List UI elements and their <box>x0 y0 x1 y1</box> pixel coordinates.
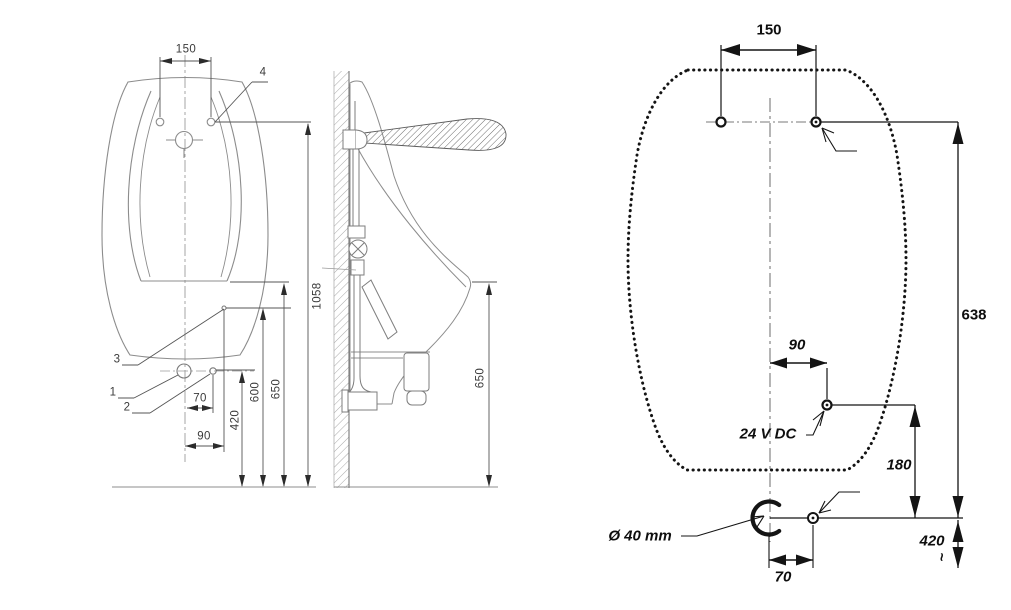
sensor-head <box>343 130 356 149</box>
side-dim-650: 650 <box>475 368 487 388</box>
spreader-tube <box>362 280 397 339</box>
front-item-4: 4 <box>260 67 267 79</box>
front-item-2: 2 <box>124 402 131 414</box>
template-dim-420: 420 <box>919 534 944 549</box>
drain-diameter-label: Ø 40 mm <box>608 529 671 544</box>
front-dim-600: 600 <box>250 382 262 402</box>
template-outline-dotted <box>628 70 906 470</box>
side-view-linework <box>322 71 506 488</box>
front-item-3: 3 <box>114 354 121 366</box>
approx-tilde-symbol: ~ <box>934 553 949 562</box>
front-dim-70: 70 <box>193 393 207 405</box>
template-dim-90: 90 <box>789 338 806 353</box>
front-dim-150: 150 <box>176 44 196 56</box>
wall-outlet <box>347 392 377 410</box>
flush-inlet-circle <box>176 132 193 149</box>
urinal-installation-drawing: 150 4 3 1 2 70 90 420 600 650 1058 650 1… <box>0 0 1011 610</box>
mounting-hole-left <box>156 118 164 126</box>
front-dim-1058: 1058 <box>312 282 324 309</box>
template-view-linework <box>628 44 964 568</box>
front-dim-90: 90 <box>197 431 211 443</box>
front-view-dimensions <box>112 57 316 487</box>
front-dim-420: 420 <box>230 410 242 430</box>
drawing-linework <box>0 0 1011 610</box>
front-item-1: 1 <box>110 387 117 399</box>
template-dim-638: 638 <box>961 308 986 323</box>
template-dim-70: 70 <box>775 570 792 585</box>
front-dim-650: 650 <box>271 379 283 399</box>
template-dim-180: 180 <box>886 458 911 473</box>
mounting-hole-right <box>207 118 215 126</box>
drain-trap <box>404 353 429 391</box>
template-dim-150: 150 <box>756 23 781 38</box>
template-hole-left <box>717 118 726 127</box>
flush-pipe <box>353 101 359 226</box>
power-supply-label: 24 V DC <box>740 427 797 442</box>
